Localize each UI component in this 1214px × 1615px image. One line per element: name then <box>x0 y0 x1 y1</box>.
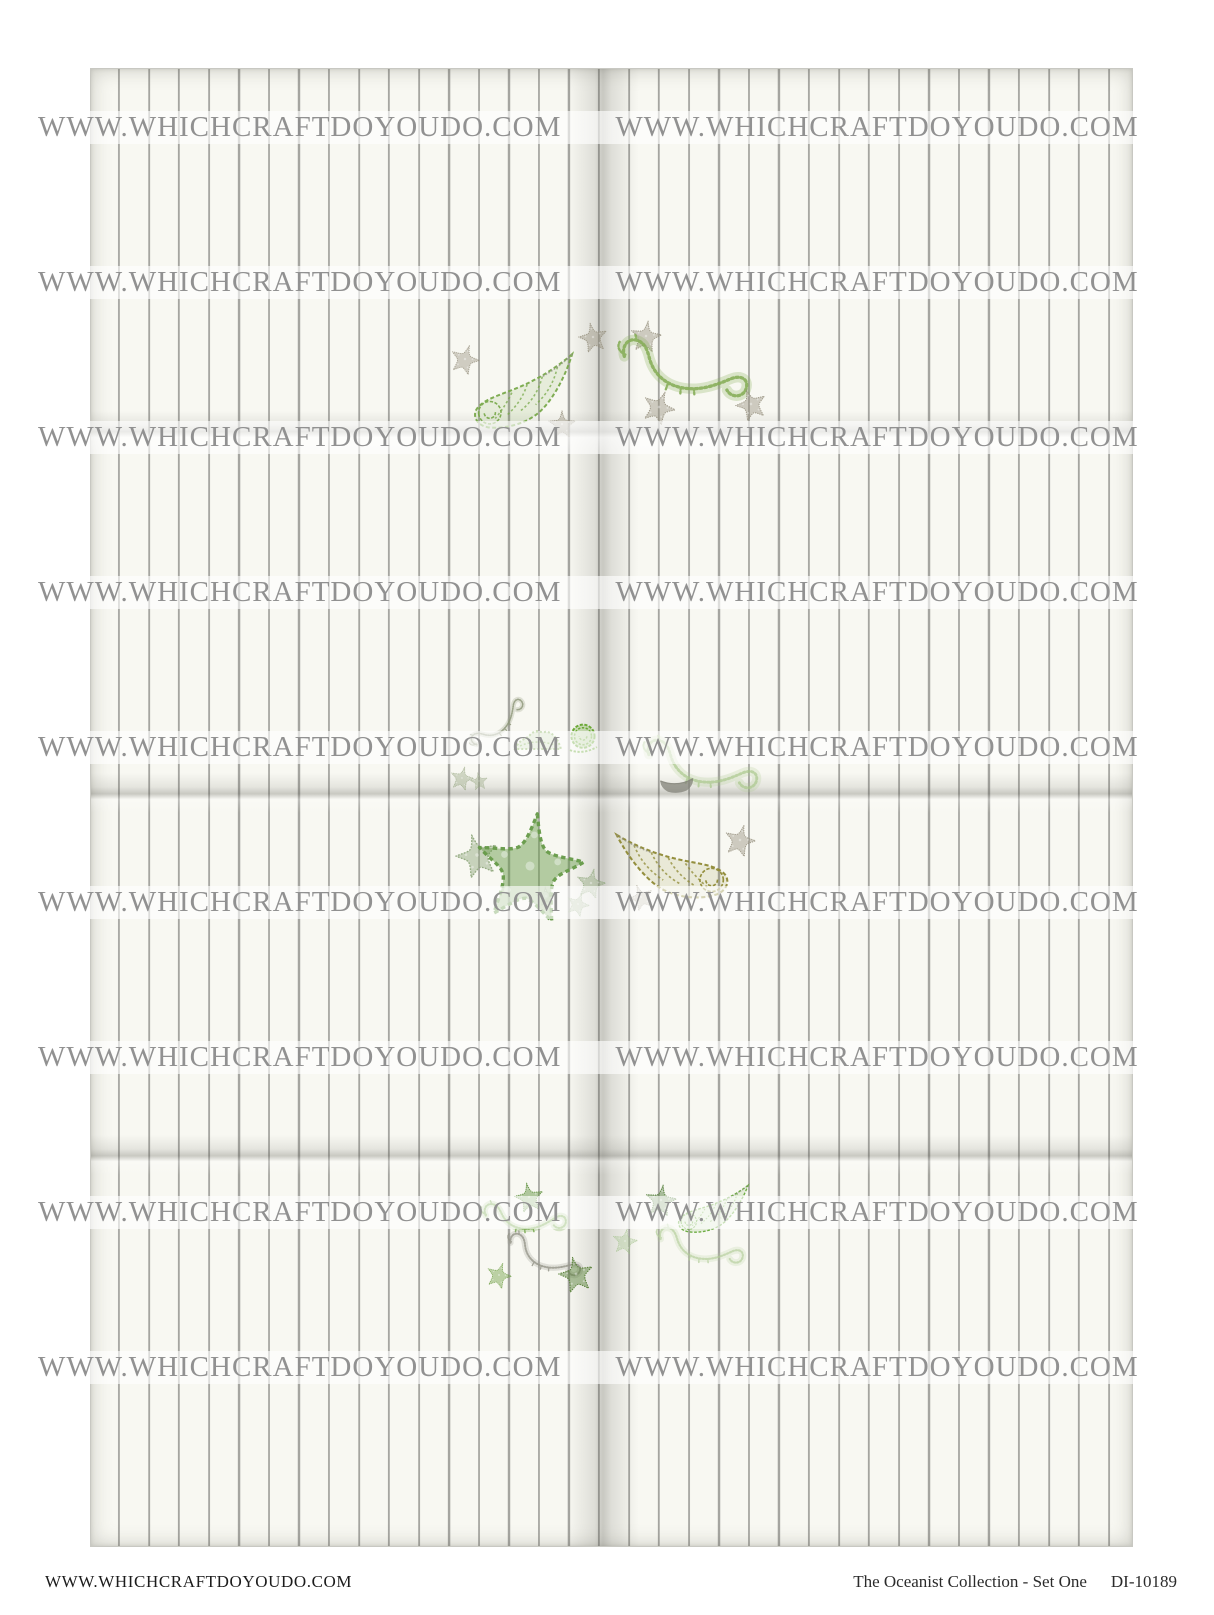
footer-product-code: DI-10189 <box>1111 1572 1177 1592</box>
footer-collection-title: The Oceanist Collection - Set One <box>853 1572 1087 1592</box>
footer-caption: The Oceanist Collection - Set One DI-101… <box>853 1572 1177 1592</box>
striped-paper-sheet <box>90 68 1133 1547</box>
horizontal-fold-shadow-3 <box>91 1135 1132 1175</box>
page: WWW.WHICHCRAFTDOYOUDO.COMWWW.WHICHCRAFTD… <box>0 0 1214 1615</box>
horizontal-fold-shadow-1 <box>91 411 1132 451</box>
horizontal-fold-shadow-2 <box>91 773 1132 813</box>
footer-site-url: WWW.WHICHCRAFTDOYOUDO.COM <box>45 1572 352 1592</box>
